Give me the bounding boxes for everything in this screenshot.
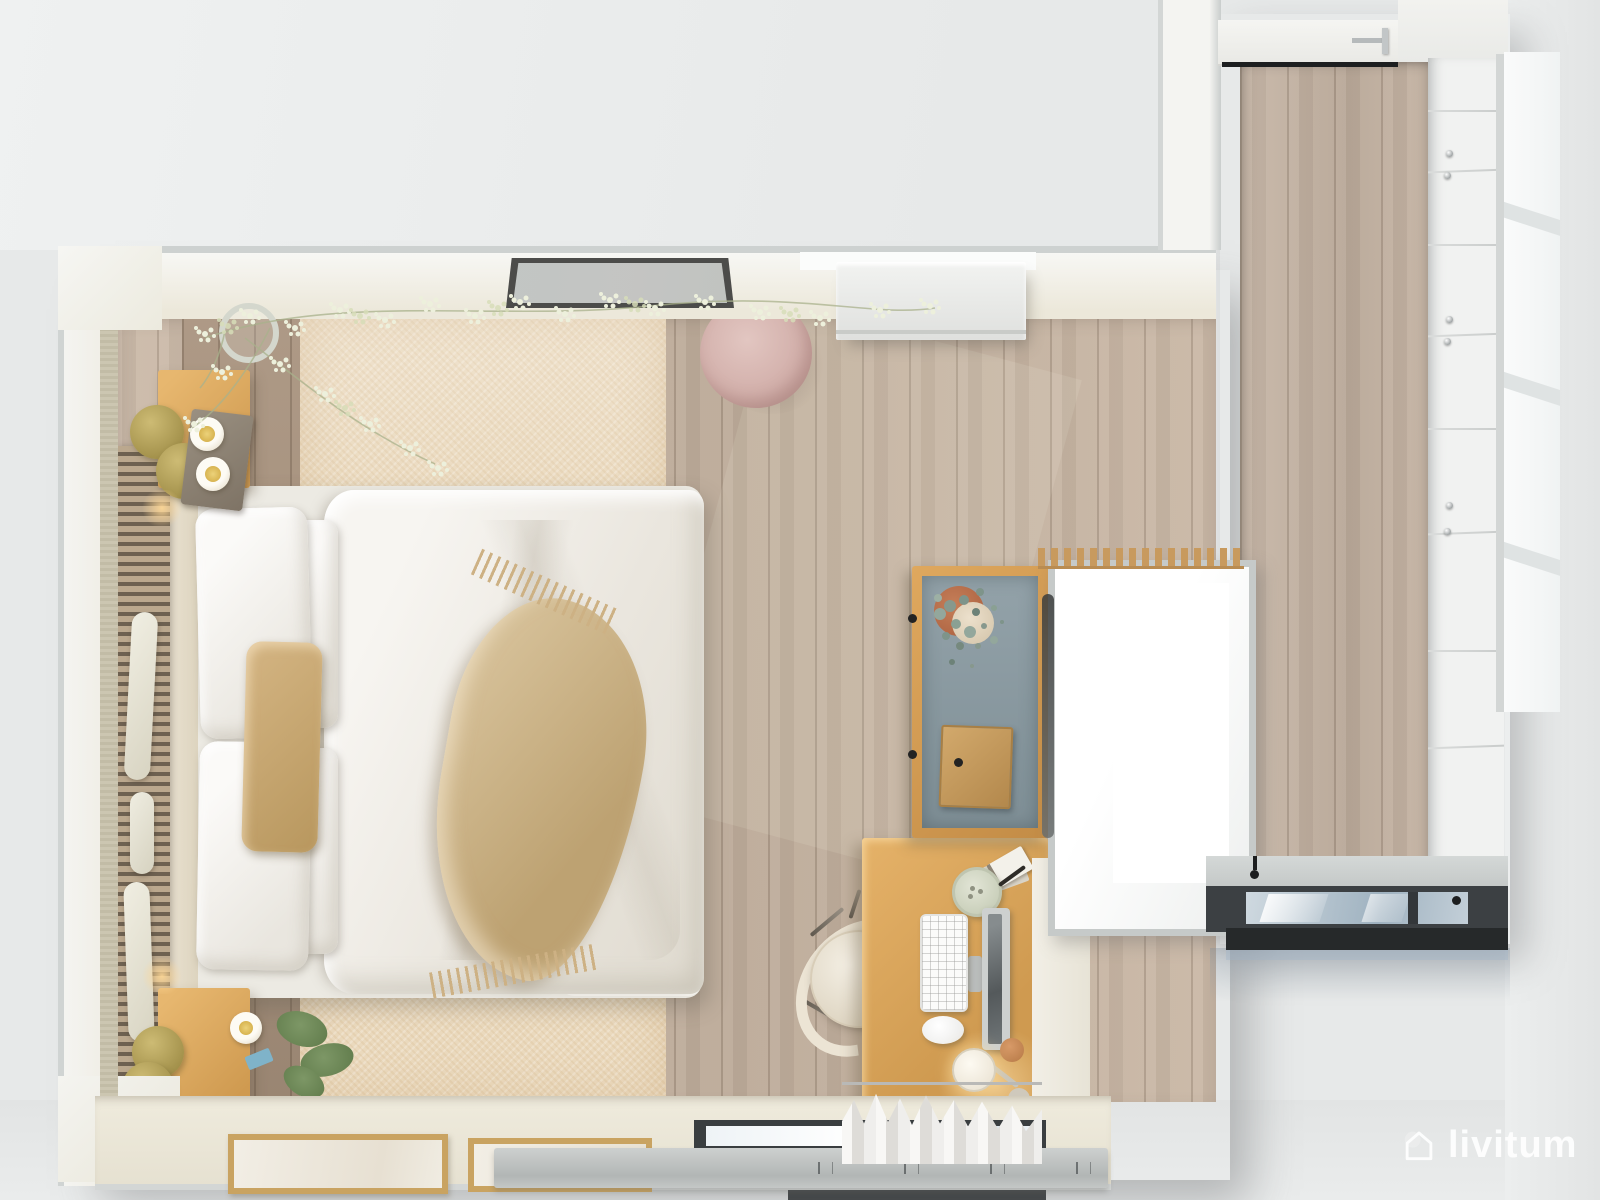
- door-handle-cap: [1382, 28, 1388, 54]
- desk-lamp-head: [952, 1048, 996, 1092]
- wardrobe-seam: [1428, 110, 1504, 112]
- corridor-window-glass: [1246, 892, 1468, 924]
- headboard-light-bottom: [140, 958, 184, 994]
- panel-vase-2: [130, 792, 154, 874]
- wardrobe: [1428, 58, 1504, 872]
- eucalyptus-vase: [952, 602, 994, 644]
- watermark-text: livitum: [1448, 1124, 1577, 1167]
- rendered-scene: livitum: [0, 0, 1600, 1200]
- door-handle-stem: [1352, 38, 1386, 43]
- window-handle-dot-1: [1250, 870, 1259, 879]
- cup-3-drink: [239, 1021, 253, 1035]
- corridor-window-base: [1226, 928, 1508, 950]
- hutch-wood-box: [939, 725, 1014, 809]
- headboard-light-top: [140, 490, 184, 526]
- wardrobe-seam: [1428, 531, 1504, 536]
- curtain-rod: [842, 1082, 1042, 1085]
- exterior-wall-edge: [1496, 54, 1504, 712]
- wardrobe-knob: [1446, 150, 1453, 157]
- partition-highlight: [1113, 583, 1229, 883]
- wardrobe-knob: [1444, 528, 1451, 535]
- window-mullion: [1504, 538, 1560, 582]
- wardrobe-seam: [1428, 428, 1504, 430]
- hutch-knob-2: [908, 750, 917, 759]
- wardrobe-seam: [1428, 244, 1504, 246]
- wardrobe-knob: [1444, 338, 1451, 345]
- entry-door: [1218, 20, 1398, 66]
- partition-dark-accent: [1042, 594, 1054, 838]
- eucalyptus-leaves: [944, 600, 956, 612]
- corridor-left-wall: [1158, 0, 1221, 250]
- corridor-window-divider: [1408, 892, 1418, 924]
- hutch-knob-1: [908, 614, 917, 623]
- wardrobe-seam: [1428, 650, 1504, 652]
- livitum-watermark: livitum: [1400, 1124, 1577, 1167]
- corridor-floor: [1240, 58, 1430, 872]
- monitor-stand: [968, 956, 982, 992]
- wardrobe-seam: [1428, 333, 1504, 338]
- window-mullion: [1504, 198, 1560, 242]
- window-handle-dot-2: [1452, 896, 1461, 905]
- house-icon: [1400, 1127, 1438, 1165]
- dried-flower-cup: [1000, 1038, 1024, 1062]
- accent-pillow: [241, 641, 322, 853]
- bed-head-rail: [168, 486, 198, 998]
- monitor-screen: [988, 914, 1002, 1044]
- candle-wicks: [970, 886, 975, 891]
- glass-reflection: [1259, 894, 1328, 922]
- corridor-window-reflect-strip: [1226, 950, 1508, 960]
- window-mullion: [1504, 368, 1560, 412]
- exterior-windows: [1504, 52, 1560, 712]
- gypsophila-branches: [130, 276, 960, 491]
- mouse: [922, 1016, 964, 1044]
- hutch-knob-3: [954, 758, 963, 767]
- wardrobe-seam: [1428, 745, 1504, 750]
- door-threshold: [1222, 62, 1398, 67]
- glass-reflection: [1361, 894, 1410, 922]
- window-handle-pin: [1253, 856, 1257, 870]
- left-accent-wall: [100, 330, 118, 1096]
- wardrobe-knob: [1446, 502, 1453, 509]
- picture-frame-1: [228, 1134, 448, 1194]
- corridor-top-right-wall: [1398, 0, 1508, 62]
- wardrobe-knob: [1444, 172, 1451, 179]
- wardrobe-seam: [1428, 169, 1504, 174]
- slat-screen: [1038, 548, 1244, 569]
- wardrobe-knob: [1446, 316, 1453, 323]
- monitor: [982, 908, 1010, 1050]
- keyboard: [920, 914, 968, 1012]
